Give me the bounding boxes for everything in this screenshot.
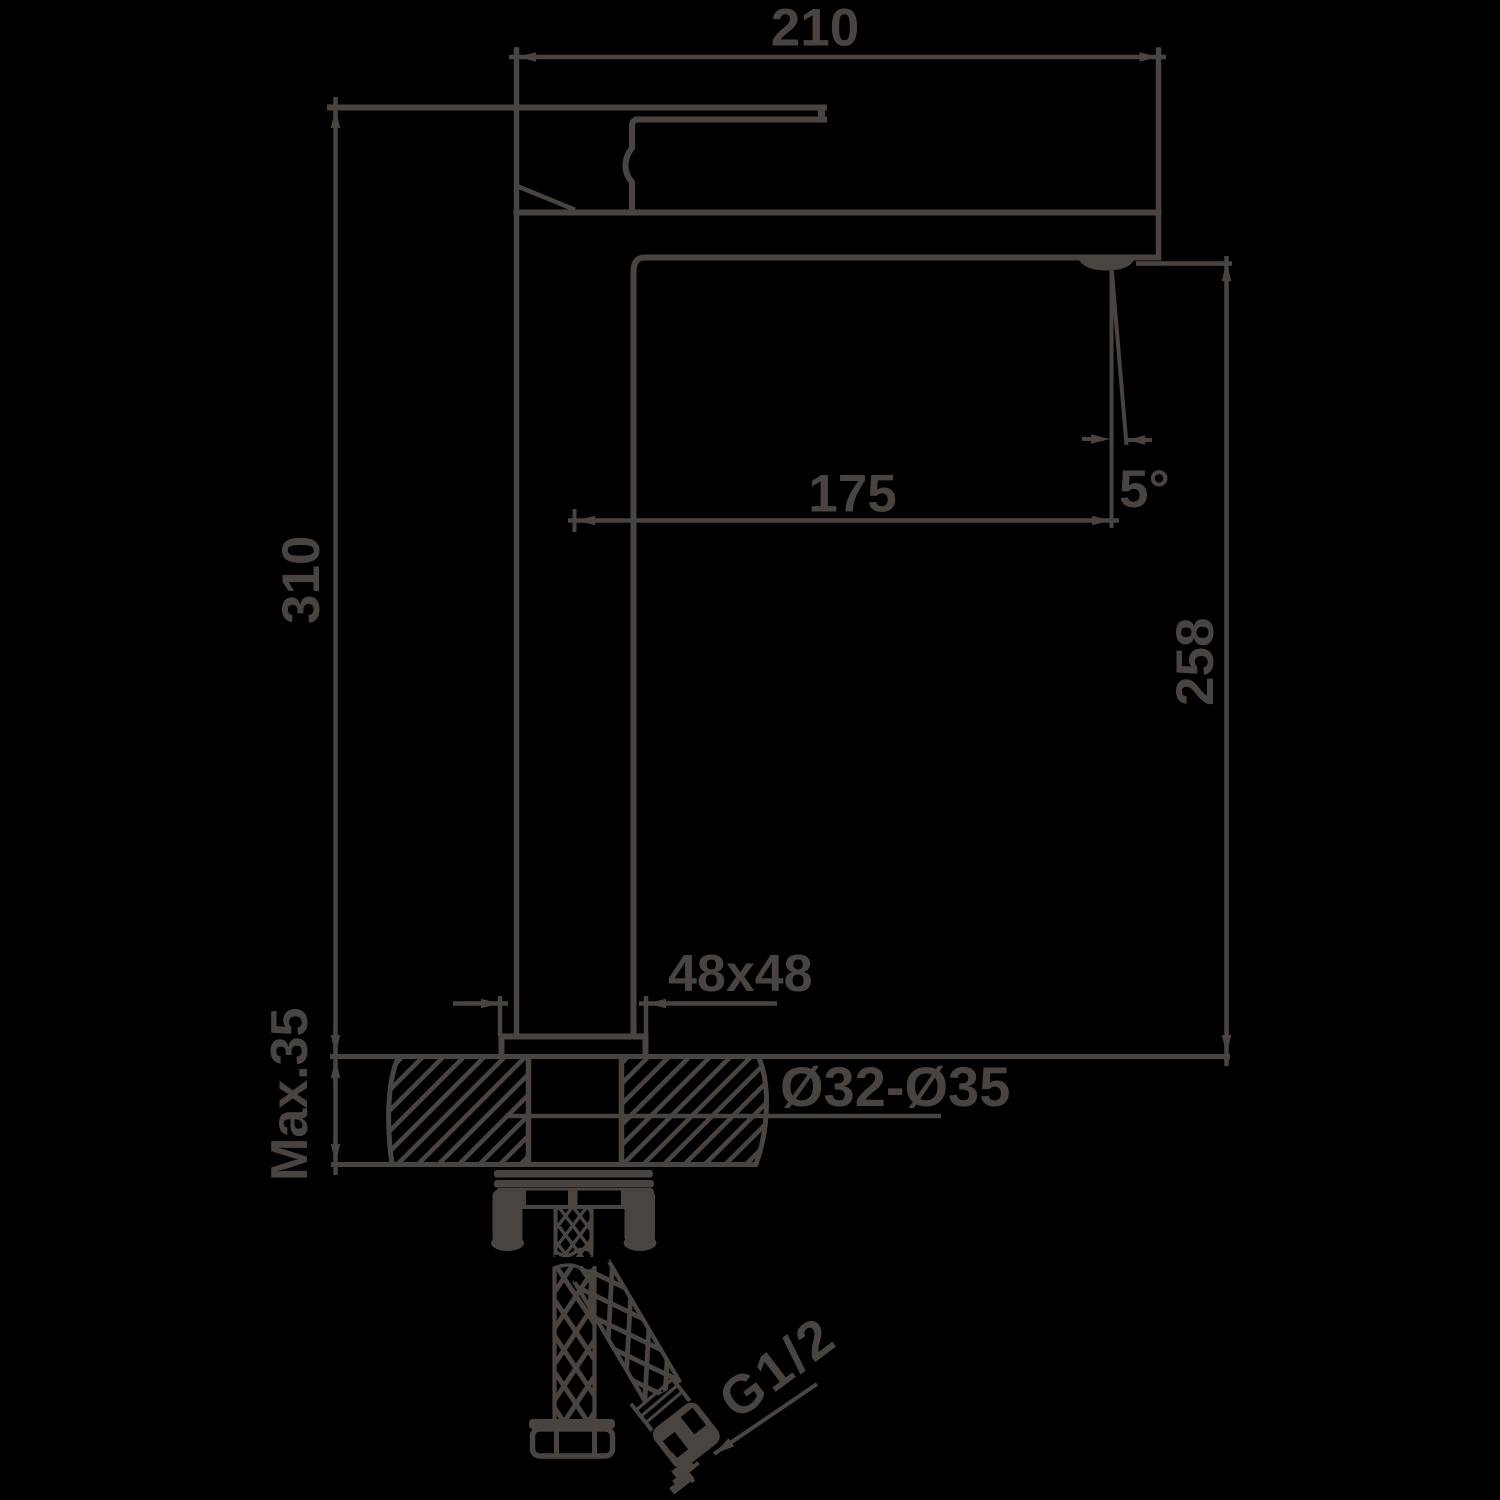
svg-text:Ø32-Ø35: Ø32-Ø35 (780, 1055, 1010, 1118)
svg-text:175: 175 (808, 465, 896, 524)
svg-text:5°: 5° (1119, 460, 1170, 519)
svg-text:258: 258 (1166, 618, 1225, 706)
svg-text:Max.35: Max.35 (261, 1008, 319, 1181)
svg-text:48x48: 48x48 (668, 945, 813, 1003)
svg-text:210: 210 (771, 0, 859, 58)
svg-text:310: 310 (272, 536, 331, 624)
